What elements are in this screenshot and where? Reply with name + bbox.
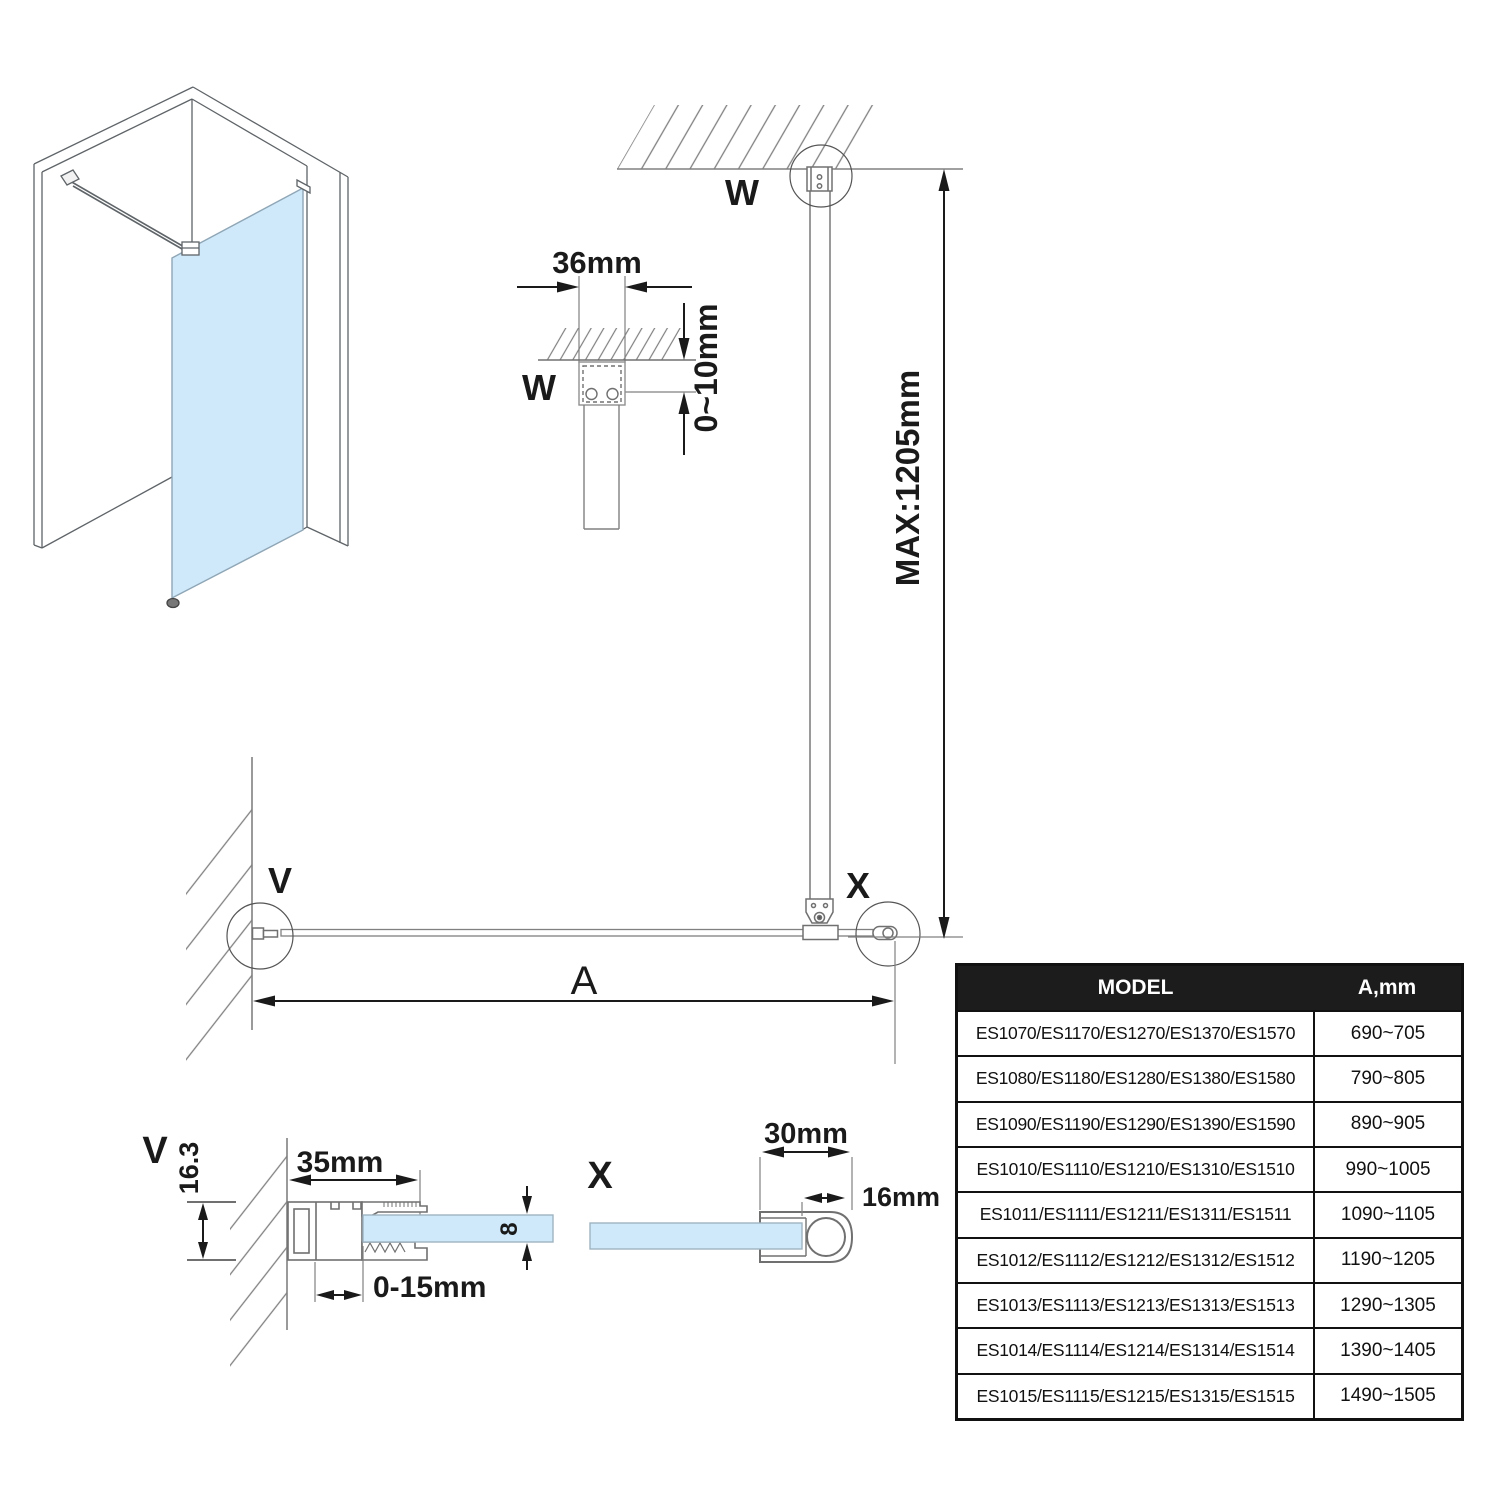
arrow-left-icon bbox=[316, 1290, 334, 1300]
dim-35mm: 35mm bbox=[297, 1146, 384, 1179]
label-x-plan: X bbox=[846, 865, 870, 906]
table-header-model: MODEL bbox=[958, 966, 1313, 1010]
wall-hatch-section bbox=[230, 1136, 287, 1402]
a-cell: 790~805 bbox=[1313, 1057, 1461, 1100]
arrow-right-icon bbox=[396, 1175, 418, 1186]
a-cell: 1090~1105 bbox=[1313, 1193, 1461, 1236]
table-row: ES1015/ES1115/ES1215/ES1315/ES1515 1490~… bbox=[958, 1373, 1461, 1418]
shower-screen-install-diagram: W W 36mm 0~10mm MAX:1205mm V X A V 16.3 … bbox=[0, 0, 1500, 1500]
model-cell: ES1070/ES1170/ES1270/ES1370/ES1570 bbox=[958, 1012, 1313, 1055]
dim-a-letter: A bbox=[571, 959, 598, 1003]
table-row: ES1090/ES1190/ES1290/ES1390/ES1590 890~9… bbox=[958, 1101, 1461, 1146]
ceiling-hatch-small bbox=[538, 328, 681, 360]
a-cell: 1490~1505 bbox=[1313, 1375, 1461, 1418]
a-cell: 990~1005 bbox=[1313, 1148, 1461, 1191]
bottom-foot-3d bbox=[167, 599, 179, 608]
label-w-detail: W bbox=[522, 367, 556, 408]
ceiling-hatch bbox=[617, 105, 889, 169]
model-cell: ES1014/ES1114/ES1214/ES1314/ES1514 bbox=[958, 1329, 1313, 1372]
table-row: ES1070/ES1170/ES1270/ES1370/ES1570 690~7… bbox=[958, 1010, 1461, 1055]
table-row: ES1011/ES1111/ES1211/ES1311/ES1511 1090~… bbox=[958, 1191, 1461, 1236]
dim-36mm: 36mm bbox=[552, 245, 642, 280]
a-cell: 1290~1305 bbox=[1313, 1284, 1461, 1327]
isometric-view bbox=[34, 87, 348, 608]
arrow-left-icon bbox=[804, 1193, 822, 1203]
arrow-left-icon bbox=[253, 996, 275, 1007]
dim-0-15mm: 0-15mm bbox=[373, 1271, 486, 1304]
dim-30mm: 30mm bbox=[764, 1118, 848, 1150]
wall-hatch-plan bbox=[186, 757, 252, 1067]
table-row: ES1010/ES1110/ES1210/ES1310/ES1510 990~1… bbox=[958, 1146, 1461, 1191]
a-cell: 890~905 bbox=[1313, 1103, 1461, 1146]
bar-pivot-bracket bbox=[803, 899, 838, 940]
table-row: ES1012/ES1112/ES1212/ES1312/ES1512 1190~… bbox=[958, 1237, 1461, 1282]
a-cell: 1190~1205 bbox=[1313, 1239, 1461, 1282]
glass-section-v bbox=[363, 1215, 553, 1242]
dim-16-3: 16.3 bbox=[174, 1142, 204, 1195]
glass-section-x bbox=[590, 1223, 802, 1249]
dim-8: 8 bbox=[496, 1222, 523, 1235]
arrow-down-icon bbox=[522, 1196, 532, 1214]
arrow-right-icon bbox=[872, 996, 894, 1007]
arrow-down-icon bbox=[198, 1242, 208, 1259]
arrow-down-icon bbox=[939, 917, 950, 939]
table-row: ES1080/ES1180/ES1280/ES1380/ES1580 790~8… bbox=[958, 1055, 1461, 1100]
arrow-up-icon bbox=[198, 1203, 208, 1220]
table-row: ES1013/ES1113/ES1213/ES1313/ES1513 1290~… bbox=[958, 1282, 1461, 1327]
arrow-up-icon bbox=[939, 169, 950, 191]
dim-0-10mm: 0~10mm bbox=[688, 304, 724, 433]
model-cell: ES1090/ES1190/ES1290/ES1390/ES1590 bbox=[958, 1103, 1313, 1146]
model-cell: ES1010/ES1110/ES1210/ES1310/ES1510 bbox=[958, 1148, 1313, 1191]
model-cell: ES1012/ES1112/ES1212/ES1312/ES1512 bbox=[958, 1239, 1313, 1282]
table-header-a: A,mm bbox=[1313, 966, 1461, 1010]
table-header-row: MODEL A,mm bbox=[958, 966, 1461, 1010]
support-bar-tube-section bbox=[807, 1218, 845, 1256]
model-cell: ES1011/ES1111/ES1211/ES1311/ES1511 bbox=[958, 1193, 1313, 1236]
arrow-right-icon bbox=[344, 1290, 362, 1300]
table-row: ES1014/ES1114/ES1214/ES1314/ES1514 1390~… bbox=[958, 1327, 1461, 1372]
model-spec-table: MODEL A,mm ES1070/ES1170/ES1270/ES1370/E… bbox=[955, 963, 1464, 1421]
model-cell: ES1013/ES1113/ES1213/ES1313/ES1513 bbox=[958, 1284, 1313, 1327]
ceiling-bracket bbox=[807, 167, 832, 191]
arrow-right-icon bbox=[827, 1193, 845, 1203]
ceiling-bracket-detail bbox=[579, 362, 625, 405]
arrow-up-icon bbox=[522, 1243, 532, 1261]
arrow-left-icon bbox=[625, 282, 647, 293]
a-cell: 1390~1405 bbox=[1313, 1329, 1461, 1372]
bar-wall-bracket-3d bbox=[61, 170, 79, 185]
wall-clamp bbox=[253, 928, 278, 939]
model-cell: ES1015/ES1115/ES1215/ES1315/ES1515 bbox=[958, 1375, 1313, 1418]
label-x-section: X bbox=[587, 1155, 613, 1197]
glass-band-plan bbox=[281, 930, 873, 937]
x-detail bbox=[590, 1147, 852, 1263]
arrow-right-icon bbox=[557, 282, 579, 293]
a-cell: 690~705 bbox=[1313, 1012, 1461, 1055]
support-bar-3d bbox=[70, 181, 186, 248]
label-v-plan: V bbox=[268, 860, 292, 901]
model-cell: ES1080/ES1180/ES1280/ES1380/ES1580 bbox=[958, 1057, 1313, 1100]
dim-16mm: 16mm bbox=[862, 1182, 940, 1212]
label-w-top: W bbox=[725, 172, 759, 213]
label-v-section: V bbox=[142, 1130, 168, 1172]
dim-max-1205mm: MAX:1205mm bbox=[889, 370, 926, 586]
